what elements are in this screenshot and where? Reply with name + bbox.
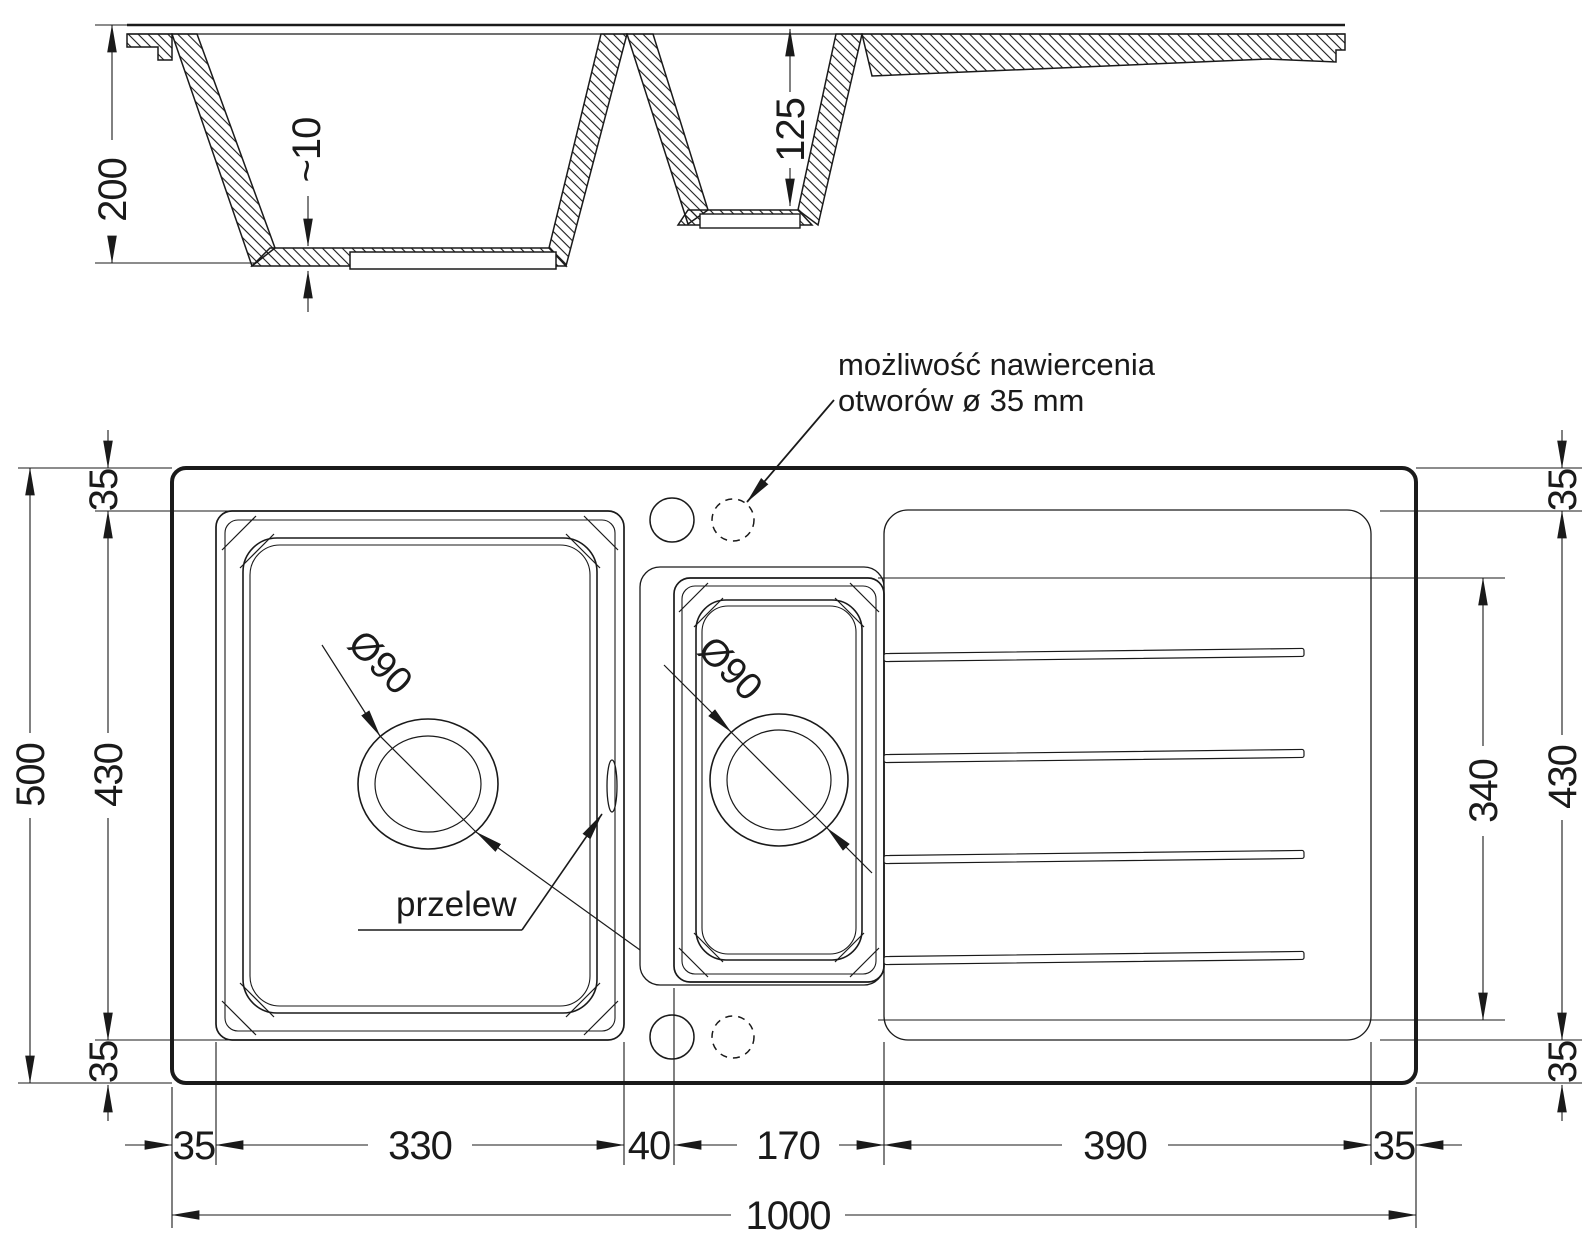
bottom-margin-right-label: 35: [1373, 1124, 1416, 1168]
drainer-board-section: [862, 34, 1345, 76]
plan-view: Ø90 przelew Ø90: [9, 347, 1585, 1236]
technical-drawing-page: 200 ~10 125: [0, 0, 1595, 1236]
total-height-label: 500: [9, 743, 53, 807]
left-rim-block: [127, 34, 172, 60]
right-bowl-height-label: 430: [1541, 745, 1585, 809]
left-bottom-margin-label: 35: [82, 1041, 126, 1084]
small-bowl-depth-label: 125: [769, 98, 813, 162]
small-bowl-left-wall: [627, 34, 708, 224]
left-bowl-height-label: 430: [87, 743, 131, 807]
divider-width-label: 40: [628, 1124, 671, 1168]
left-top-margin-label: 35: [82, 469, 126, 512]
small-drain-plate: [700, 214, 800, 228]
drainer-width-label: 390: [1083, 1124, 1147, 1168]
main-bowl-left-wall: [172, 34, 275, 266]
annotation-line2: otworów ø 35 mm: [838, 383, 1084, 418]
right-bottom-margin-label: 35: [1541, 1041, 1585, 1084]
main-drain-plate: [350, 252, 556, 269]
main-bowl-width-label: 330: [388, 1124, 452, 1168]
main-bowl-right-wall: [549, 34, 627, 266]
drainer-groove-height-label: 340: [1462, 759, 1506, 823]
total-width-label: 1000: [746, 1194, 831, 1236]
small-bowl-width-label: 170: [756, 1124, 820, 1168]
section-view: 200 ~10 125: [91, 25, 1345, 312]
overflow-label: przelew: [396, 885, 517, 924]
bottom-thickness-label: ~10: [285, 118, 329, 183]
depth-total-label: 200: [91, 158, 135, 222]
sink-technical-drawing: 200 ~10 125: [0, 0, 1595, 1236]
right-top-margin-label: 35: [1541, 469, 1585, 512]
annotation-line1: możliwość nawiercenia: [838, 347, 1156, 382]
bottom-margin-left-label: 35: [173, 1124, 216, 1168]
